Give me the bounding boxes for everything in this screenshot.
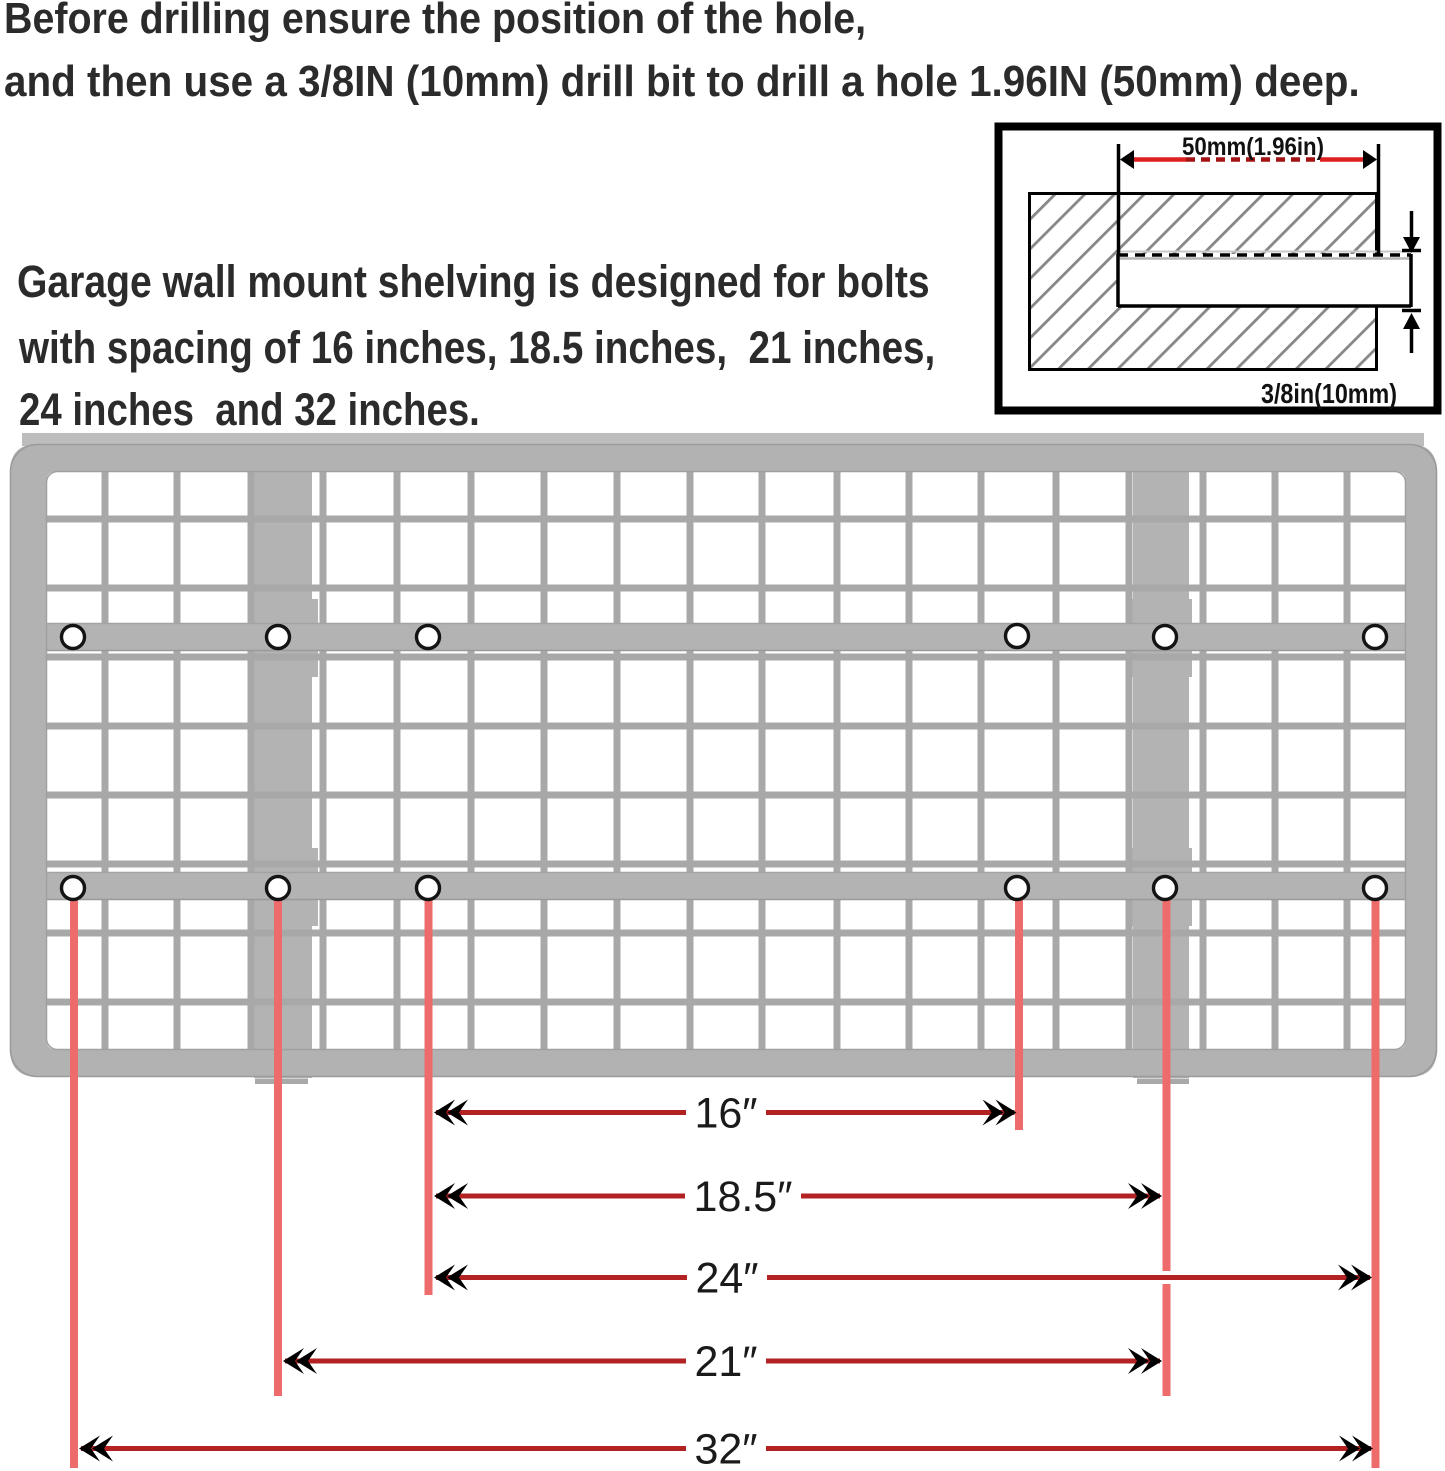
svg-text:24″: 24″ [695,1255,758,1303]
svg-text:3/8in(10mm): 3/8in(10mm) [1261,378,1397,409]
svg-text:18.5″: 18.5″ [694,1173,793,1221]
svg-text:16″: 16″ [694,1090,757,1138]
svg-text:32″: 32″ [694,1426,757,1471]
svg-text:21″: 21″ [694,1338,757,1386]
svg-text:50mm(1.96in): 50mm(1.96in) [1182,133,1324,161]
